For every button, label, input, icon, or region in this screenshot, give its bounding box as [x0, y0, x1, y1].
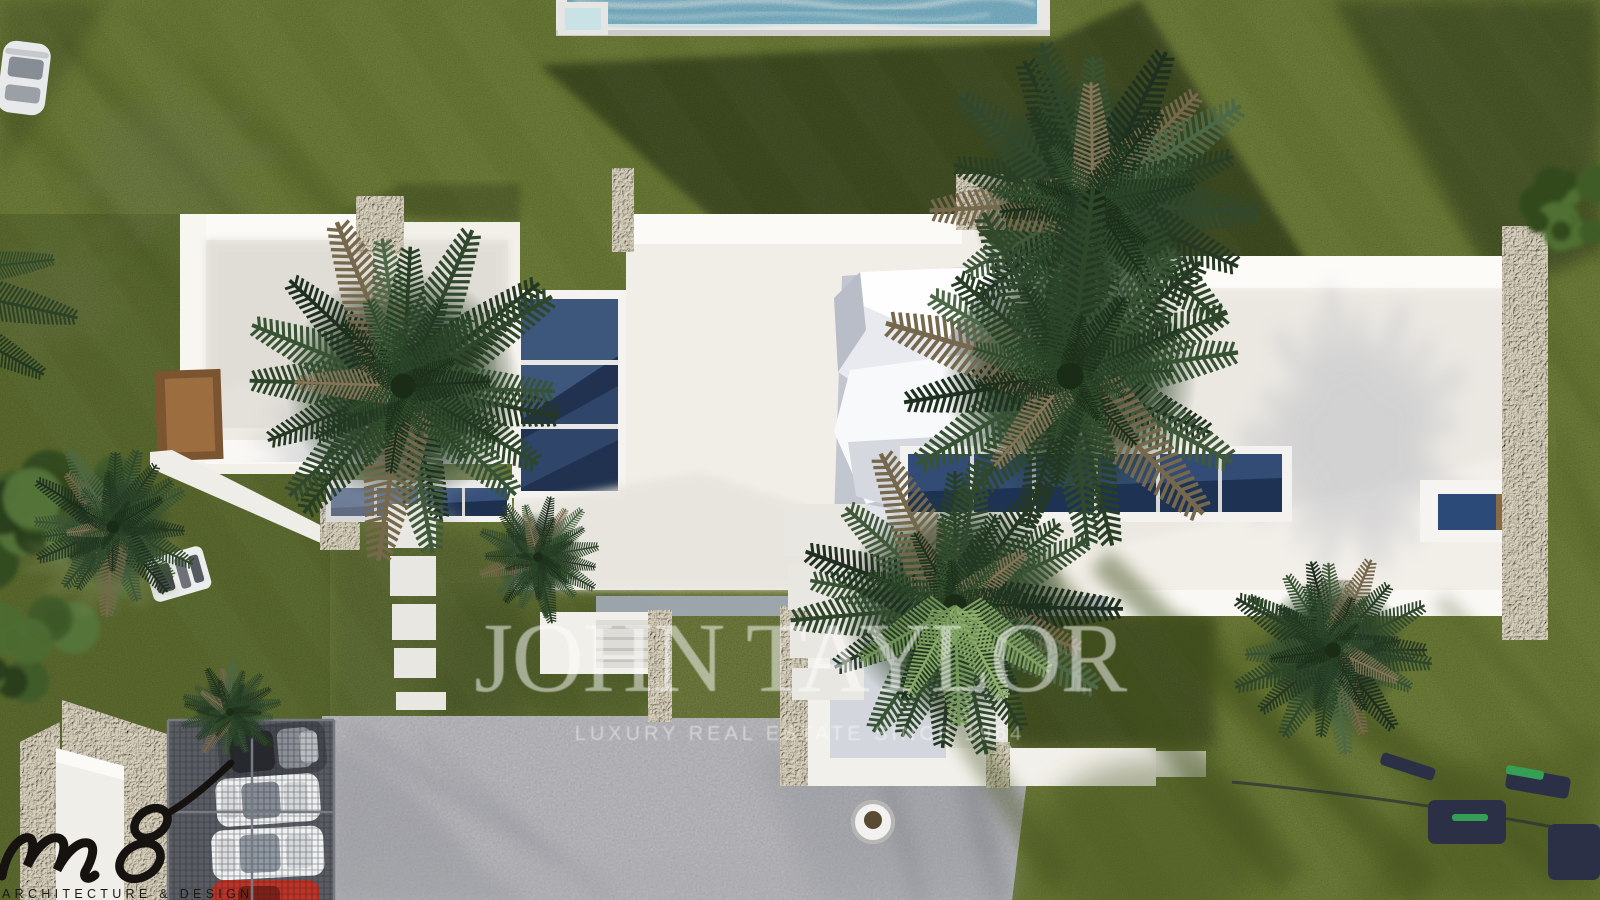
svg-text:JOHN TAYLOR: JOHN TAYLOR: [474, 602, 1127, 713]
svg-text:ARCHITECTURE & DESIGN: ARCHITECTURE & DESIGN: [2, 887, 253, 900]
svg-text:LUXURY REAL ESTATE SINCE 1964: LUXURY REAL ESTATE SINCE 1964: [575, 723, 1026, 745]
